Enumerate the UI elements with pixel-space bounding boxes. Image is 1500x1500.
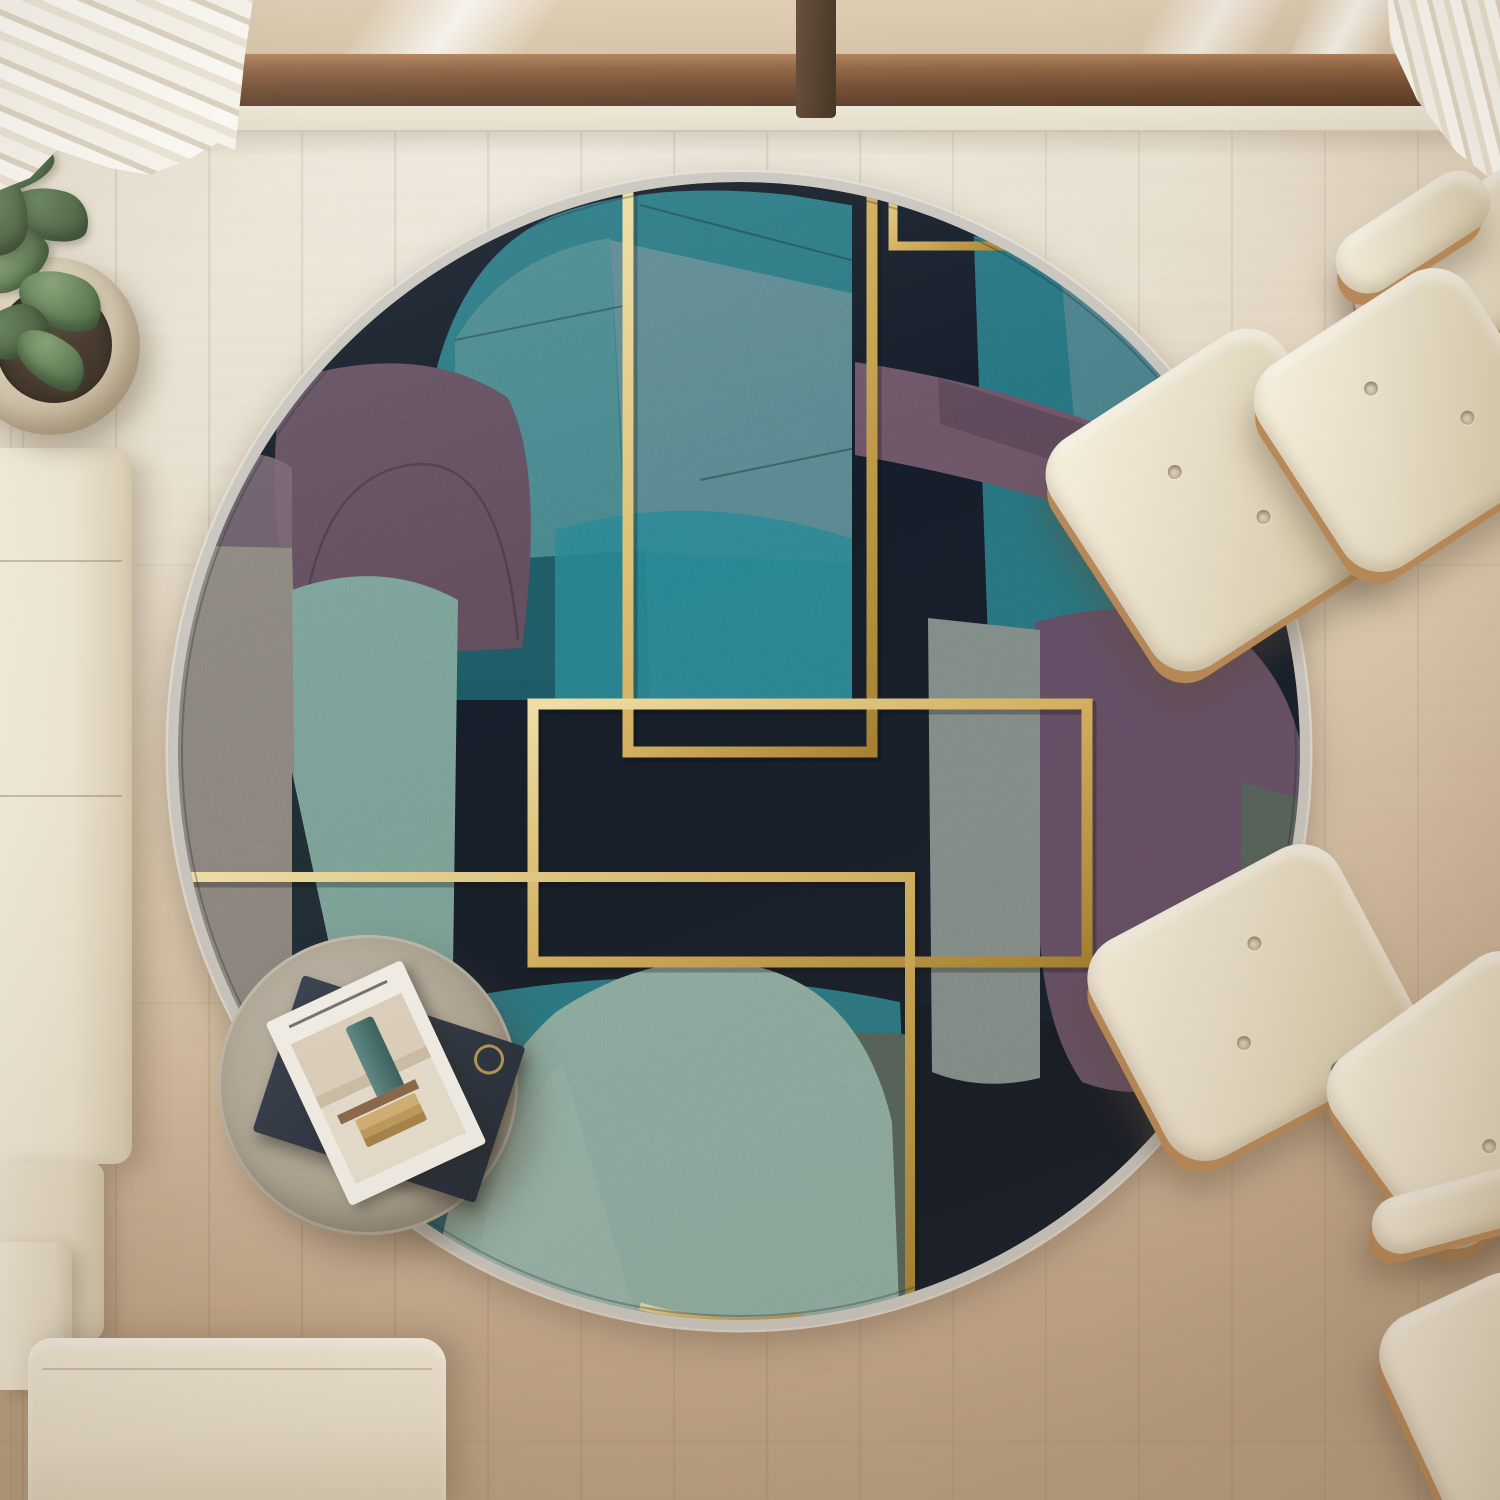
tufting-button xyxy=(1165,462,1184,481)
magazine-emblem-icon xyxy=(470,1041,508,1079)
sofa-seam xyxy=(0,795,122,797)
tufting-button xyxy=(1235,1033,1254,1052)
tufting-button xyxy=(1245,933,1264,952)
cover-vase xyxy=(345,1015,405,1098)
tufting-button xyxy=(1254,508,1273,527)
sofa-seam xyxy=(42,1368,432,1370)
tufting-button xyxy=(1479,1136,1499,1156)
sofa-seam xyxy=(0,560,122,562)
round-rug xyxy=(0,0,1500,1500)
side-table: OLIV xyxy=(218,935,518,1235)
living-room-scene: OLIV xyxy=(0,0,1500,1500)
sofa-chaise xyxy=(28,1338,446,1500)
tufting-button xyxy=(1361,379,1380,398)
tufting-button xyxy=(1458,408,1477,427)
sofa-backrest xyxy=(0,448,132,1164)
